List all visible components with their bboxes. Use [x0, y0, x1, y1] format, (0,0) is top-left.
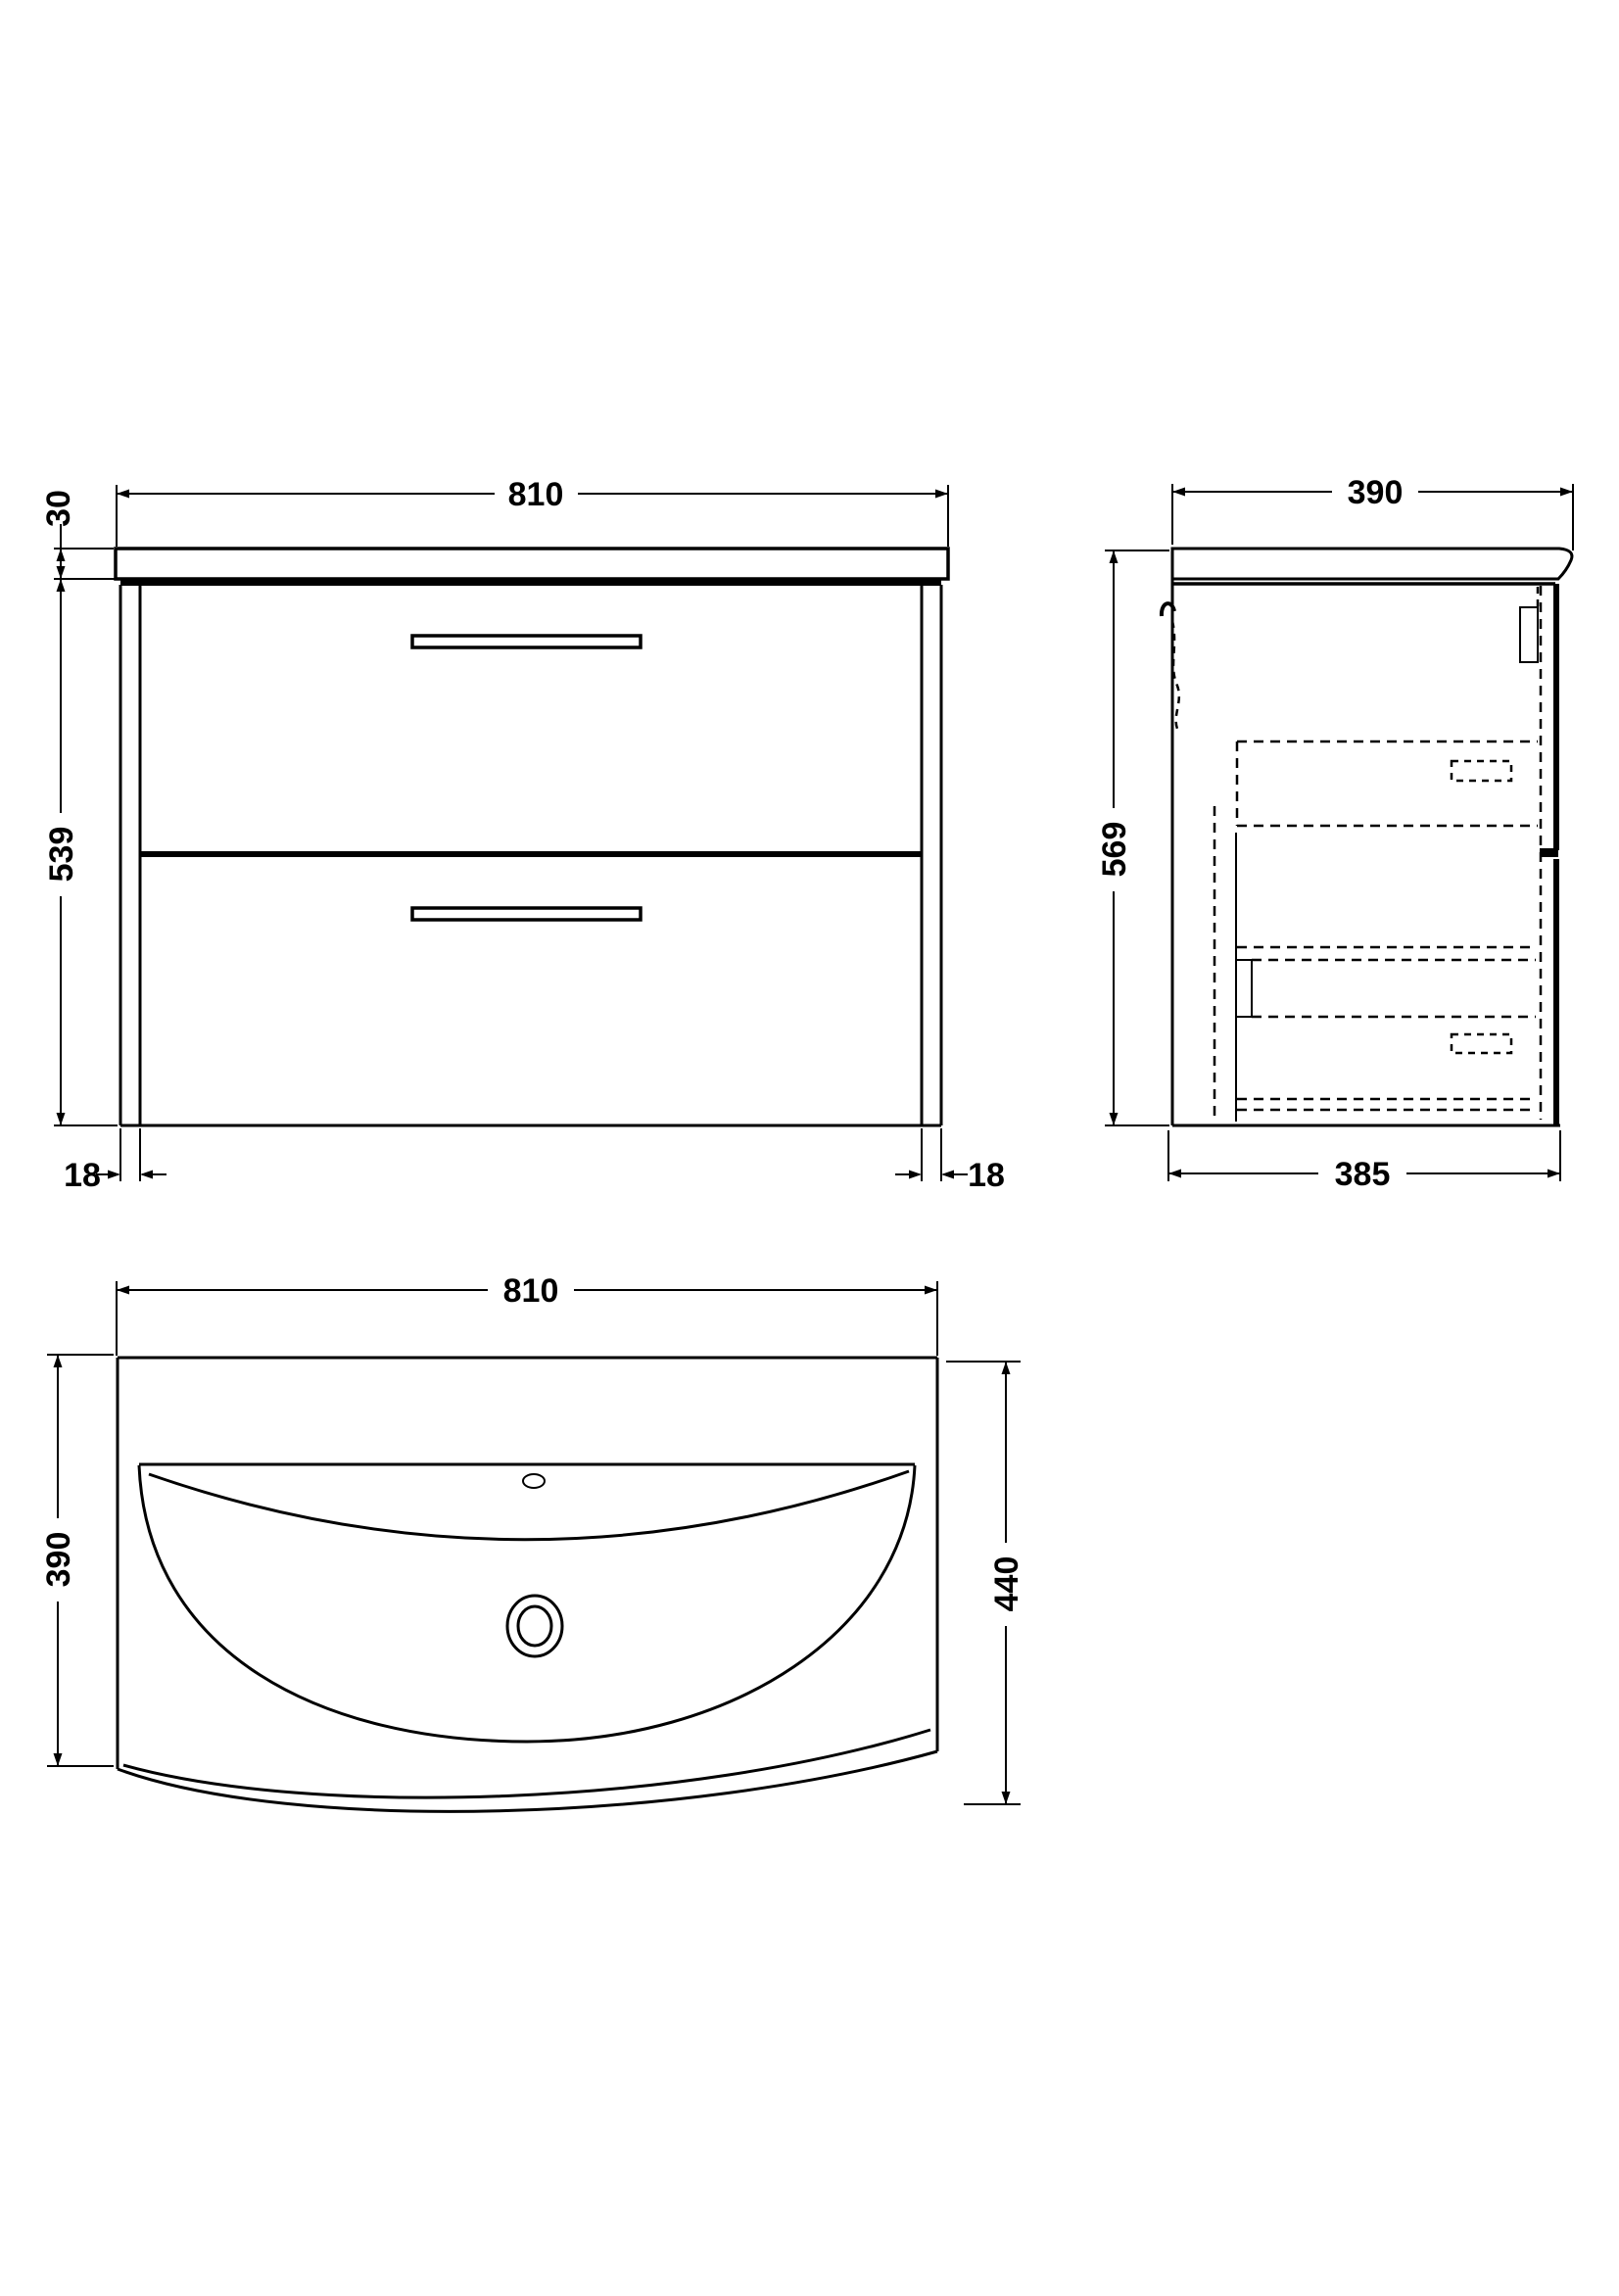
basin-width-dimension: 810	[117, 1272, 937, 1356]
side-depth-dimension: 390	[1172, 474, 1573, 550]
basin-overall-depth-dimension: 440	[946, 1362, 1025, 1804]
side-height-dimension: 569	[1096, 550, 1169, 1125]
side-cabinet-depth-label: 385	[1335, 1156, 1391, 1193]
front-cabinet-height-label: 539	[43, 827, 80, 883]
wall-bracket-annotation	[1162, 603, 1179, 729]
basin-front-inner-curve	[123, 1730, 930, 1797]
front-width-label: 810	[508, 476, 564, 513]
front-bottom-drawer-handle	[412, 908, 641, 920]
front-width-dimension: 810	[117, 476, 948, 547]
side-top-drawer-handle-hidden	[1452, 761, 1511, 781]
side-bottom-drawer-handle-hidden	[1452, 1034, 1511, 1053]
side-height-label: 569	[1096, 822, 1133, 878]
side-hidden-drawer-detail	[1214, 586, 1541, 1122]
front-left-panel-dimension: 18	[64, 1128, 167, 1194]
side-wall-hanger-bracket	[1520, 607, 1538, 662]
front-left-panel-label: 18	[64, 1157, 101, 1194]
side-drawer-runner	[1236, 960, 1252, 1017]
side-cabinet-depth-dimension: 385	[1168, 1130, 1560, 1193]
front-elevation-view: 810 30 539 18	[40, 476, 1005, 1194]
front-worktop-thickness-label: 30	[40, 490, 77, 527]
basin-depth-label: 390	[40, 1532, 77, 1588]
front-cabinet-height-dimension: 539	[43, 579, 118, 1125]
basin-overall-depth-label: 440	[988, 1556, 1025, 1612]
basin-back-ledge-curve	[149, 1471, 909, 1540]
front-worktop	[116, 549, 948, 579]
basin-depth-dimension: 390	[40, 1355, 114, 1766]
side-drawer-gap-notch	[1540, 848, 1558, 857]
drain-hole-inner	[518, 1606, 551, 1646]
side-elevation-view: 390 569 385	[1096, 474, 1573, 1193]
overflow-hole	[523, 1474, 545, 1488]
technical-drawing-canvas: 810 30 539 18	[0, 0, 1619, 2296]
drain-hole-outer	[507, 1596, 562, 1656]
basin-width-label: 810	[503, 1272, 559, 1310]
front-top-drawer-handle	[412, 636, 641, 647]
side-depth-label: 390	[1348, 474, 1404, 511]
basin-plan-view: 810 390 440	[40, 1272, 1025, 1811]
front-right-panel-dimension: 18	[895, 1128, 1005, 1194]
front-worktop-thickness-dimension: 30	[40, 490, 119, 579]
front-right-panel-label: 18	[968, 1157, 1005, 1194]
side-worktop	[1172, 549, 1572, 579]
